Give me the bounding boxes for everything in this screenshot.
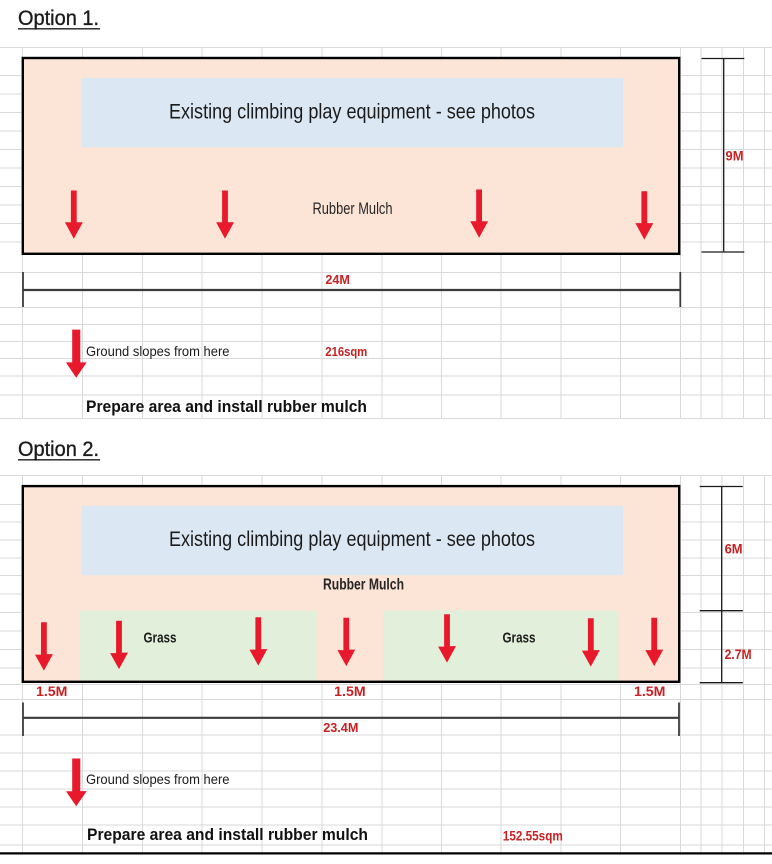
svg-text:152.55sqm: 152.55sqm [503, 828, 563, 844]
svg-text:Rubber Mulch: Rubber Mulch [323, 577, 404, 594]
svg-text:23.4M: 23.4M [323, 720, 358, 735]
svg-text:Grass: Grass [144, 629, 177, 646]
svg-text:216sqm: 216sqm [325, 344, 367, 359]
svg-text:Existing climbing play equipme: Existing climbing play equipment - see p… [169, 100, 535, 124]
svg-text:24M: 24M [325, 272, 350, 287]
svg-text:1.5M: 1.5M [334, 683, 365, 699]
svg-text:6M: 6M [725, 541, 743, 557]
svg-text:Option 1.: Option 1. [18, 6, 99, 30]
svg-text:9M: 9M [726, 148, 744, 164]
svg-text:Prepare area and install rubbe: Prepare area and install rubber mulch [87, 825, 368, 844]
svg-text:Prepare area and install rubbe: Prepare area and install rubber mulch [86, 397, 367, 416]
svg-text:Ground slopes from here: Ground slopes from here [86, 772, 230, 787]
svg-text:Existing climbing play equipme: Existing climbing play equipment - see p… [169, 527, 535, 551]
svg-text:Option 2.: Option 2. [18, 437, 99, 461]
svg-text:1.5M: 1.5M [36, 683, 67, 699]
svg-text:Rubber Mulch: Rubber Mulch [313, 199, 393, 218]
svg-text:1.5M: 1.5M [634, 683, 665, 699]
svg-text:2.7M: 2.7M [725, 646, 752, 662]
svg-text:Grass: Grass [503, 629, 536, 646]
svg-text:Ground slopes from here: Ground slopes from here [86, 344, 230, 359]
